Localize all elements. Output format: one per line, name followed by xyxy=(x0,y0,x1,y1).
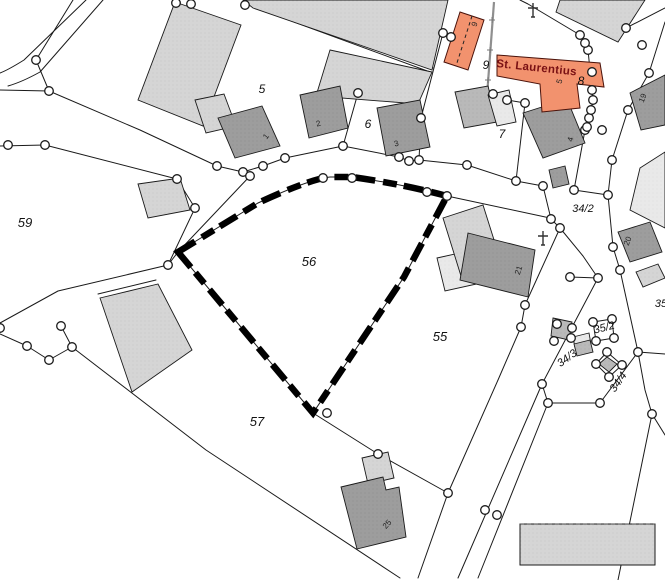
survey-point xyxy=(645,69,654,78)
selected-parcel-boundary[interactable] xyxy=(178,177,447,413)
cross-symbol xyxy=(538,231,548,245)
survey-point xyxy=(544,399,553,408)
building-house-21[interactable] xyxy=(460,233,535,297)
cadastral-map-view[interactable]: 595655575678934/234/335/234/435 12345919… xyxy=(0,0,665,580)
survey-point xyxy=(417,114,426,123)
survey-point xyxy=(512,177,521,186)
survey-point xyxy=(622,24,631,33)
wall-tick xyxy=(487,47,493,53)
parcel-57-south-boundary xyxy=(72,347,400,578)
survey-point xyxy=(608,156,617,165)
survey-point xyxy=(246,172,255,181)
boundary xyxy=(418,493,448,578)
survey-point xyxy=(259,162,268,171)
parcel-label-56: 56 xyxy=(302,254,317,269)
boundary-zigzag xyxy=(0,326,72,360)
survey-point xyxy=(521,301,530,310)
survey-point xyxy=(616,266,625,275)
parcel-label-59: 59 xyxy=(18,215,32,230)
parcel-label-7: 7 xyxy=(499,127,507,141)
survey-point xyxy=(568,324,577,333)
road-edge xyxy=(0,0,86,73)
survey-point xyxy=(585,114,594,123)
survey-point xyxy=(638,41,647,50)
survey-point xyxy=(213,162,222,171)
survey-point xyxy=(187,0,196,8)
building-house-19[interactable] xyxy=(630,75,665,130)
survey-point xyxy=(587,106,596,115)
boundary xyxy=(620,270,652,414)
survey-point xyxy=(415,156,424,165)
parcel-56-outline xyxy=(178,177,447,413)
road-edge xyxy=(0,0,73,91)
survey-point xyxy=(439,29,448,38)
survey-point xyxy=(624,106,633,115)
survey-point xyxy=(45,87,54,96)
survey-point xyxy=(164,261,173,270)
survey-point xyxy=(319,174,328,183)
survey-point xyxy=(610,334,619,343)
survey-point xyxy=(68,343,77,352)
survey-point xyxy=(603,348,612,357)
survey-point xyxy=(589,96,598,105)
building-hall[interactable] xyxy=(520,524,655,565)
survey-point xyxy=(489,90,498,99)
parcel-59-boundary xyxy=(0,145,177,179)
building-roof[interactable] xyxy=(630,152,665,228)
survey-point xyxy=(481,506,490,515)
street-edge xyxy=(543,186,598,278)
building-house-2[interactable] xyxy=(300,86,348,138)
survey-point xyxy=(598,126,607,135)
survey-point xyxy=(323,409,332,418)
survey-point xyxy=(354,89,363,98)
survey-point xyxy=(648,410,657,419)
survey-point xyxy=(241,1,250,10)
survey-point xyxy=(374,450,383,459)
survey-point xyxy=(594,274,603,283)
survey-point xyxy=(567,334,576,343)
survey-point xyxy=(581,39,590,48)
wall-ticks-layer xyxy=(485,17,495,83)
survey-point xyxy=(553,320,562,329)
survey-point xyxy=(423,188,432,197)
survey-point xyxy=(172,0,181,7)
building-house-3[interactable] xyxy=(377,100,430,156)
survey-point xyxy=(604,191,613,200)
survey-point xyxy=(538,380,547,389)
building[interactable] xyxy=(636,264,665,287)
wall-tick xyxy=(489,17,495,23)
survey-point xyxy=(556,224,565,233)
survey-point xyxy=(618,361,627,370)
survey-point xyxy=(32,56,41,65)
survey-point xyxy=(339,142,348,151)
parcel-label-5: 5 xyxy=(259,82,266,96)
survey-point xyxy=(521,99,530,108)
survey-point xyxy=(592,360,601,369)
survey-point xyxy=(395,153,404,162)
survey-point xyxy=(281,154,290,163)
building[interactable] xyxy=(556,0,645,42)
survey-point xyxy=(405,157,414,166)
survey-point xyxy=(443,192,452,201)
wall-tick xyxy=(485,77,491,83)
survey-point xyxy=(463,161,472,170)
survey-point xyxy=(592,337,601,346)
survey-point xyxy=(503,96,512,105)
map-canvas[interactable]: 595655575678934/234/335/234/435 12345919… xyxy=(0,0,665,580)
building[interactable] xyxy=(100,284,192,392)
survey-point xyxy=(57,322,66,331)
parcel-label-6: 6 xyxy=(365,117,372,131)
survey-point xyxy=(0,324,4,333)
parcel-label-57: 57 xyxy=(250,414,265,429)
parcel-label-34-2: 34/2 xyxy=(572,203,593,215)
survey-point xyxy=(570,186,579,195)
survey-point xyxy=(550,337,559,346)
survey-point xyxy=(45,356,54,365)
survey-point xyxy=(547,215,556,224)
survey-point xyxy=(41,141,50,150)
building-house-25[interactable] xyxy=(341,477,406,549)
survey-point xyxy=(4,141,13,150)
survey-point xyxy=(609,243,618,252)
survey-point xyxy=(493,511,502,520)
survey-point xyxy=(583,123,592,132)
survey-point xyxy=(173,175,182,184)
survey-point xyxy=(576,31,585,40)
parcel-label-9: 9 xyxy=(483,58,490,72)
survey-point xyxy=(539,182,548,191)
parcel-label-8: 8 xyxy=(578,74,585,88)
survey-point xyxy=(23,342,32,351)
parcel-label-55: 55 xyxy=(433,329,448,344)
building-small[interactable] xyxy=(549,166,569,188)
parcel-label-35: 35 xyxy=(655,298,665,310)
building[interactable] xyxy=(138,178,190,218)
survey-point xyxy=(191,204,200,213)
survey-point xyxy=(588,68,597,77)
survey-point xyxy=(517,323,526,332)
boundary xyxy=(574,190,620,270)
survey-point xyxy=(588,86,597,95)
survey-point xyxy=(634,348,643,357)
road-edge xyxy=(8,0,103,86)
survey-point xyxy=(447,33,456,42)
survey-point xyxy=(596,399,605,408)
survey-point xyxy=(566,273,575,282)
survey-point xyxy=(444,489,453,498)
survey-point xyxy=(348,174,357,183)
